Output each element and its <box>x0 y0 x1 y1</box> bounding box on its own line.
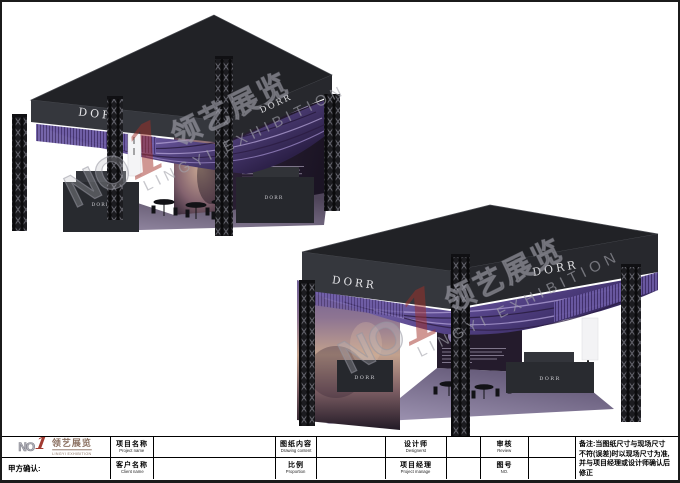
designer-cn: 设计师 <box>404 441 428 448</box>
drawing-content-cn: 图纸内容 <box>280 441 312 448</box>
notes-line: 修正 <box>579 469 676 479</box>
drawing-area: AURA DORR <box>2 2 678 437</box>
drawing-no-en: NO. <box>501 470 509 474</box>
booth2-counter-front-logo: DORR <box>539 376 560 382</box>
project-name-cn: 项目名称 <box>116 441 148 448</box>
drawing-no-cn: 图号 <box>497 462 513 469</box>
field-label-proportion: 比例 Proportion <box>276 458 317 479</box>
notes-line: 不符(误差)时以现场尺寸为准, <box>579 450 676 460</box>
booth2-wall-counter: DORR <box>337 360 393 392</box>
client-name-cn: 客户名称 <box>116 462 148 469</box>
project-name-en: Project name <box>119 449 144 453</box>
review-en: Review <box>498 449 512 453</box>
designer-en: Designerst <box>406 449 426 453</box>
company-logo: NO 1 领艺展览 LINGYI EXHIBITION <box>2 437 111 458</box>
proportion-cn: 比例 <box>288 462 304 469</box>
field-value-proportion <box>317 458 386 479</box>
project-manager-cn: 项目经理 <box>400 462 432 469</box>
drawing-content-en: Drawing content <box>281 449 312 453</box>
logo-en-text: LINGYI EXHIBITION <box>52 449 91 455</box>
title-block: NO 1 领艺展览 LINGYI EXHIBITION 项目名称 Project… <box>2 436 678 480</box>
drawing-sheet: AURA DORR <box>0 0 680 483</box>
logo-one-swoosh: 1 <box>34 438 48 452</box>
field-label-drawing-no: 图号 NO. <box>481 458 529 479</box>
party-confirm-label: 甲方确认: <box>2 458 111 479</box>
booth2-graphic-highlight <box>350 322 382 366</box>
booth-render-2: DORR AURA DORR <box>284 194 676 437</box>
notes-line: 并与项目经理或设计师确认后 <box>579 459 676 469</box>
field-label-review: 审核 Review <box>481 437 529 458</box>
booth1-counter-left: DORR <box>63 171 139 232</box>
field-label-drawing-content: 图纸内容 Drawing content <box>276 437 317 458</box>
field-label-project-name: 项目名称 Project name <box>111 437 154 458</box>
booth1-counter-right-logo: DORR <box>265 195 284 201</box>
logo-cn-text: 领艺展览 <box>52 439 92 448</box>
booth2-wall-counter-logo: DORR <box>354 375 375 381</box>
notes: 备注:当图纸尺寸与现场尺寸 不符(误差)时以现场尺寸为准, 并与项目经理或设计师… <box>576 437 678 479</box>
booth2-white-pillar <box>582 318 598 360</box>
field-value-client-name <box>154 458 276 479</box>
logo-no-text: NO <box>18 440 34 454</box>
field-value-review <box>529 437 576 458</box>
field-value-designer <box>447 437 481 458</box>
field-value-project-name <box>154 437 276 458</box>
field-value-drawing-content <box>317 437 386 458</box>
field-label-project-manager: 项目经理 Project manage <box>386 458 447 479</box>
field-label-designer: 设计师 Designerst <box>386 437 447 458</box>
field-value-drawing-no <box>529 458 576 479</box>
project-manager-en: Project manage <box>401 470 431 474</box>
review-cn: 审核 <box>497 441 513 448</box>
client-name-en: Client name <box>121 470 144 474</box>
field-label-client-name: 客户名称 Client name <box>111 458 154 479</box>
field-value-project-manager <box>447 458 481 479</box>
notes-line: 备注:当图纸尺寸与现场尺寸 <box>579 440 676 450</box>
proportion-en: Proportion <box>286 470 306 474</box>
